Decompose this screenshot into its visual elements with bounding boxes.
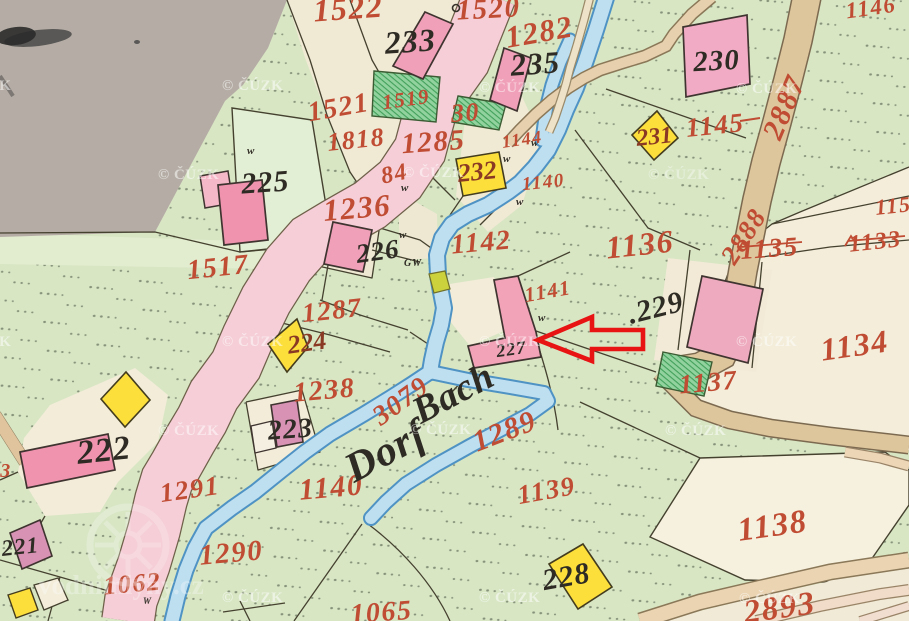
svg-text:1287: 1287 [301,292,364,328]
svg-text:© ČÚZK: © ČÚZK [665,422,726,439]
svg-text:222: 222 [74,429,133,472]
svg-text:© ČÚZK: © ČÚZK [479,333,540,350]
svg-text:w: w [516,196,524,208]
svg-text:230: 230 [691,44,740,78]
svg-text:© ČÚZK: © ČÚZK [736,80,797,97]
svg-text:30: 30 [449,97,481,128]
svg-text:223: 223 [266,412,314,446]
svg-text:235: 235 [508,44,561,82]
svg-text:© ČÚZK: © ČÚZK [222,333,283,350]
svg-text:1137: 1137 [678,365,739,400]
svg-text:1236: 1236 [322,187,393,228]
svg-text:1136: 1136 [604,223,676,266]
svg-text:1065: 1065 [349,595,413,621]
svg-text:231: 231 [634,122,674,152]
svg-text:1290: 1290 [198,534,265,571]
svg-text:w: w [538,312,546,324]
svg-text:© ČÚZK: © ČÚZK [736,333,797,350]
svg-text:1135: 1135 [739,231,799,265]
svg-text:© ČÚZK: © ČÚZK [479,79,540,96]
svg-text:© ČÚZK: © ČÚZK [739,590,800,607]
svg-text:vodnimlyny.cz: vodnimlyny.cz [38,570,204,600]
svg-text:GW: GW [404,258,422,269]
svg-text:226: 226 [353,233,401,269]
svg-text:1285: 1285 [400,124,466,160]
svg-text:233: 233 [383,21,437,61]
svg-text:© ČÚZK: © ČÚZK [479,589,540,606]
svg-text:1140: 1140 [521,170,566,195]
svg-text:221: 221 [0,532,40,561]
svg-text:3: 3 [0,460,12,482]
svg-text:w: w [399,229,407,241]
svg-text:© ČÚZK: © ČÚZK [648,166,709,183]
svg-text:© ČÚZK: © ČÚZK [222,589,283,606]
svg-text:© ČÚZK: © ČÚZK [410,421,471,438]
svg-text:1145: 1145 [684,107,745,143]
svg-text:© ČÚZK: © ČÚZK [0,333,11,350]
svg-text:1238: 1238 [292,372,356,408]
svg-text:w: w [503,153,511,165]
svg-text:224: 224 [284,326,328,360]
svg-text:115: 115 [874,191,909,220]
svg-text:1522: 1522 [312,0,384,28]
svg-text:© ČÚZK: © ČÚZK [158,166,219,183]
svg-text:1818: 1818 [326,122,387,157]
svg-text:1133: 1133 [848,226,903,257]
svg-text:1517: 1517 [186,249,251,286]
svg-text:© ČÚZK: © ČÚZK [403,164,464,181]
svg-text:w: w [247,145,255,157]
svg-text:1142: 1142 [450,224,513,260]
svg-text:© ČÚZK: © ČÚZK [222,77,283,94]
svg-text:225: 225 [239,164,290,200]
svg-text:© ČÚZK: © ČÚZK [158,422,219,439]
svg-text:© ČÚZK: © ČÚZK [0,77,11,94]
